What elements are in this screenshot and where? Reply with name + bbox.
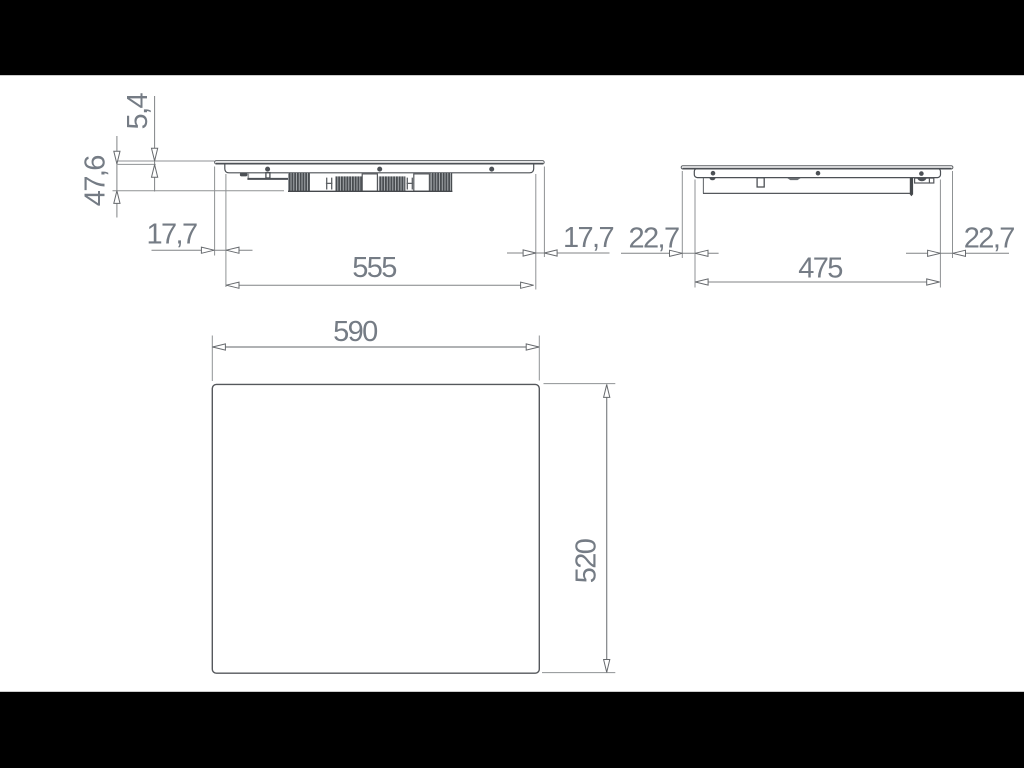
svg-text:520: 520 xyxy=(571,539,603,583)
svg-text:475: 475 xyxy=(798,253,842,285)
svg-text:555: 555 xyxy=(352,252,396,284)
svg-text:17,7: 17,7 xyxy=(563,222,614,254)
svg-text:5,4: 5,4 xyxy=(122,92,154,129)
svg-text:17,7: 17,7 xyxy=(146,219,197,251)
svg-text:590: 590 xyxy=(333,316,377,348)
svg-text:47,6: 47,6 xyxy=(80,156,112,207)
svg-text:22,7: 22,7 xyxy=(628,223,679,255)
svg-text:22,7: 22,7 xyxy=(964,223,1015,255)
